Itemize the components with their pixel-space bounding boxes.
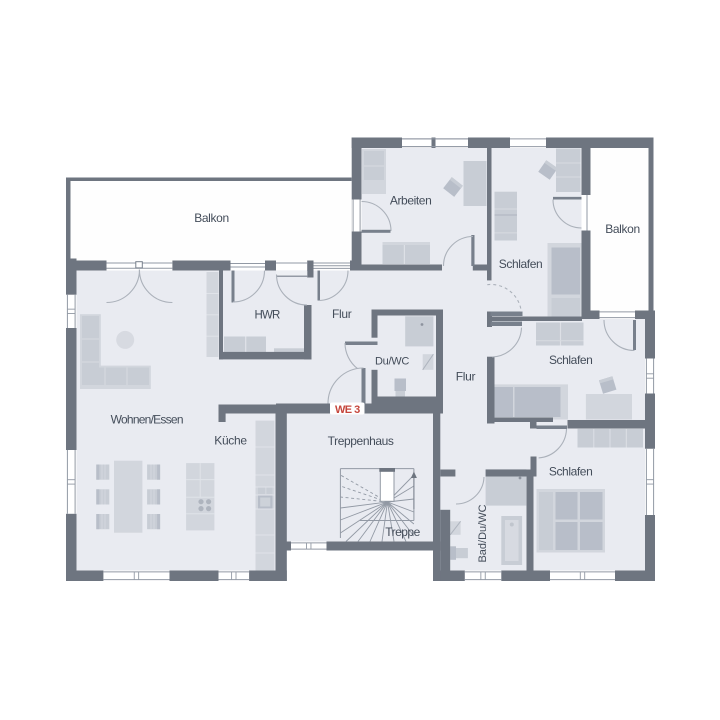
svg-text:HWR: HWR (254, 310, 280, 322)
svg-text:Flur: Flur (456, 370, 476, 384)
svg-text:Schlafen: Schlafen (549, 465, 593, 479)
svg-text:Treppe: Treppe (385, 525, 420, 539)
svg-text:Flur: Flur (332, 307, 352, 321)
svg-text:Balkon: Balkon (605, 222, 640, 236)
svg-text:Arbeiten: Arbeiten (390, 194, 432, 208)
svg-text:WE 3: WE 3 (335, 404, 360, 416)
svg-text:Balkon: Balkon (194, 211, 229, 225)
svg-text:Küche: Küche (214, 434, 247, 448)
svg-text:Treppenhaus: Treppenhaus (328, 434, 394, 448)
svg-text:Schlafen: Schlafen (499, 257, 543, 271)
svg-text:Du/WC: Du/WC (375, 356, 409, 368)
svg-text:Schlafen: Schlafen (549, 353, 593, 367)
svg-text:Wohnen/Essen: Wohnen/Essen (111, 413, 183, 427)
svg-text:Bad/Du/WC: Bad/Du/WC (477, 504, 489, 562)
